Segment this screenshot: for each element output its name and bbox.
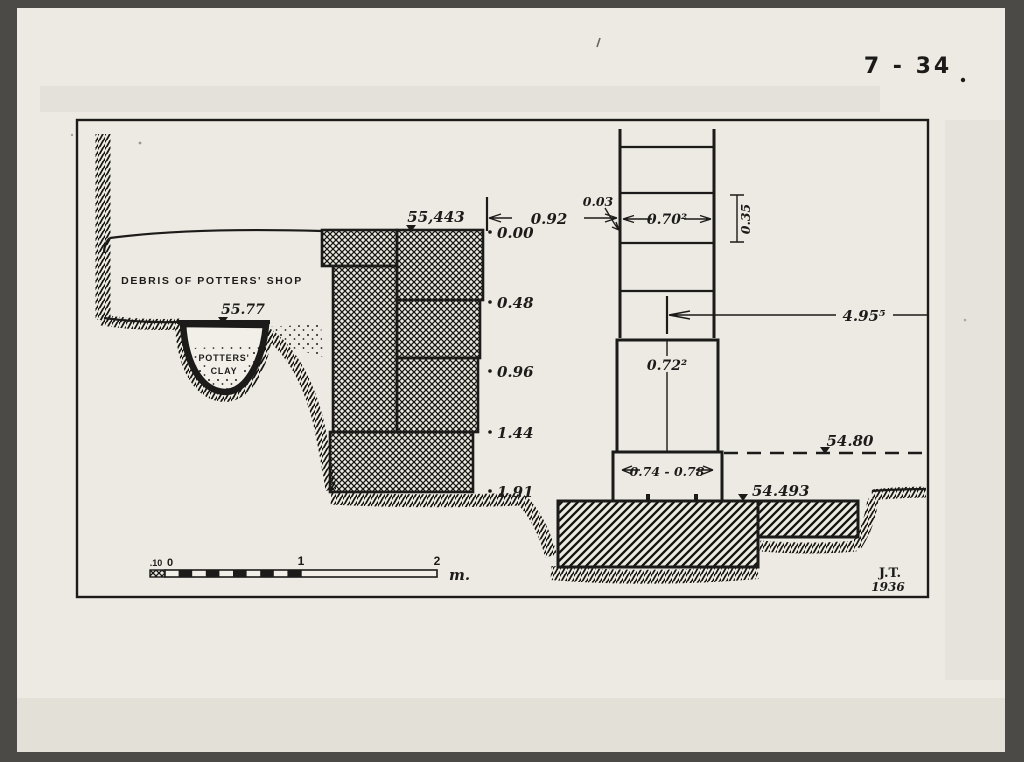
scale-sub-label: .10 <box>150 558 163 568</box>
signature-initials: J.T. <box>878 566 901 581</box>
elevation-55-443: 55,443 <box>407 208 464 226</box>
figure-number-text: 7 - 34 <box>864 54 952 79</box>
figure-number: 7 - 34 <box>864 54 965 82</box>
dim-0-72: 0.72² <box>647 358 687 374</box>
depth-mark-2: 0.96 <box>497 363 534 381</box>
masonry-wall <box>322 230 483 492</box>
scale-unit: m. <box>449 566 470 584</box>
section-drawing: 7 - 34 DEBRIS OF POTTERS' SHOP POTTERS' … <box>0 0 1024 762</box>
potters-clay-label-1: POTTERS' <box>198 353 249 363</box>
depth-mark-3: 1.44 <box>497 424 534 442</box>
depth-mark-1: 0.48 <box>497 294 534 312</box>
depth-mark-0: 0.00 <box>497 224 534 242</box>
debris-label: DEBRIS OF POTTERS' SHOP <box>121 275 303 287</box>
depth-mark-4: 1.91 <box>497 483 534 501</box>
scale-zero: 0 <box>167 557 173 569</box>
ink-dot <box>961 78 965 82</box>
scanned-photo-page: 7 - 34 DEBRIS OF POTTERS' SHOP POTTERS' … <box>0 0 1024 762</box>
elevation-55-77: 55.77 <box>221 302 265 318</box>
dim-0-92: 0.92 <box>531 210 568 228</box>
dim-0-03: 0.03 <box>583 194 614 209</box>
dim-0-70: 0.70² <box>647 212 687 228</box>
dimension-base-width: 0.74 - 0.78 <box>622 464 713 479</box>
scale-one: 1 <box>298 554 305 568</box>
dim-0-35: 0.35 <box>738 204 753 234</box>
dim-4-95: 4.95⁵ <box>842 307 886 325</box>
scale-two: 2 <box>434 554 441 568</box>
elevation-54-80: 54.80 <box>827 432 875 450</box>
signature-year: 1936 <box>871 580 905 594</box>
elevation-54-493: 54.493 <box>752 482 809 500</box>
potters-clay-label-2: CLAY <box>211 366 238 376</box>
dim-0-74-0-78: 0.74 - 0.78 <box>630 464 705 479</box>
